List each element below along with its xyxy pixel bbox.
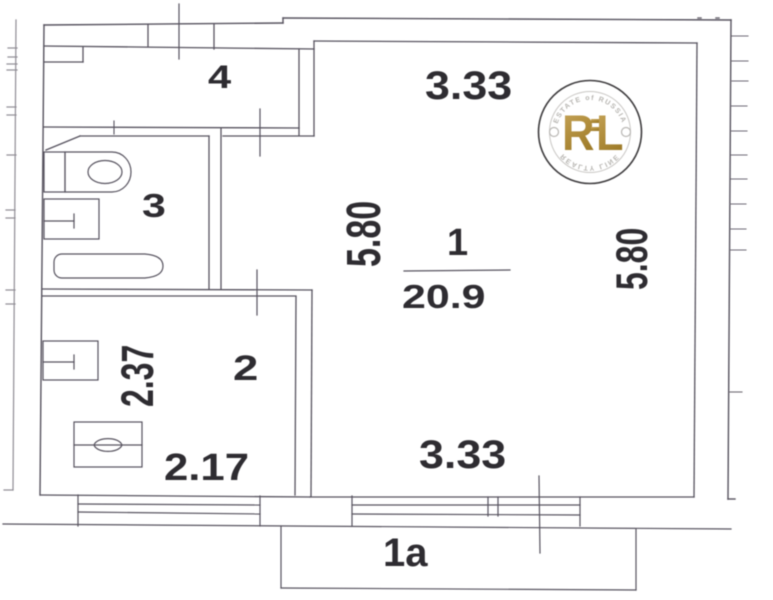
svg-text:5.80: 5.80 (336, 201, 390, 267)
svg-text:1a: 1a (383, 531, 428, 575)
svg-text:5.80: 5.80 (608, 228, 657, 290)
svg-text:L: L (596, 106, 623, 162)
svg-text:2: 2 (233, 348, 258, 388)
svg-text:3: 3 (142, 188, 166, 225)
svg-text:4: 4 (208, 59, 232, 95)
svg-text:3.33: 3.33 (419, 432, 506, 476)
svg-text:20.9: 20.9 (402, 279, 485, 316)
svg-text:2.37: 2.37 (113, 345, 164, 407)
svg-text:1: 1 (447, 222, 468, 264)
svg-text:R: R (562, 106, 594, 162)
svg-text:3.33: 3.33 (425, 63, 512, 107)
svg-text:2.17: 2.17 (164, 446, 249, 489)
